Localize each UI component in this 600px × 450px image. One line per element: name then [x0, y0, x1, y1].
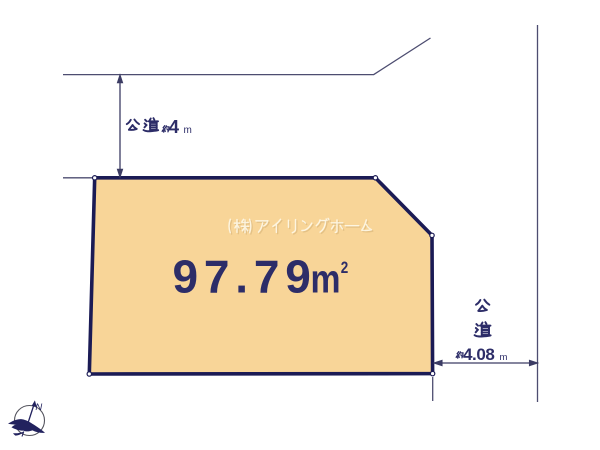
svg-text:m: m — [311, 258, 341, 302]
svg-text:N: N — [35, 402, 42, 413]
svg-text:4: 4 — [169, 116, 180, 137]
svg-text:97.79: 97.79 — [173, 251, 317, 303]
svg-text:m: m — [184, 125, 192, 136]
svg-text:4.08: 4.08 — [463, 345, 495, 364]
svg-text:2: 2 — [341, 258, 349, 277]
svg-text:m: m — [500, 352, 508, 363]
